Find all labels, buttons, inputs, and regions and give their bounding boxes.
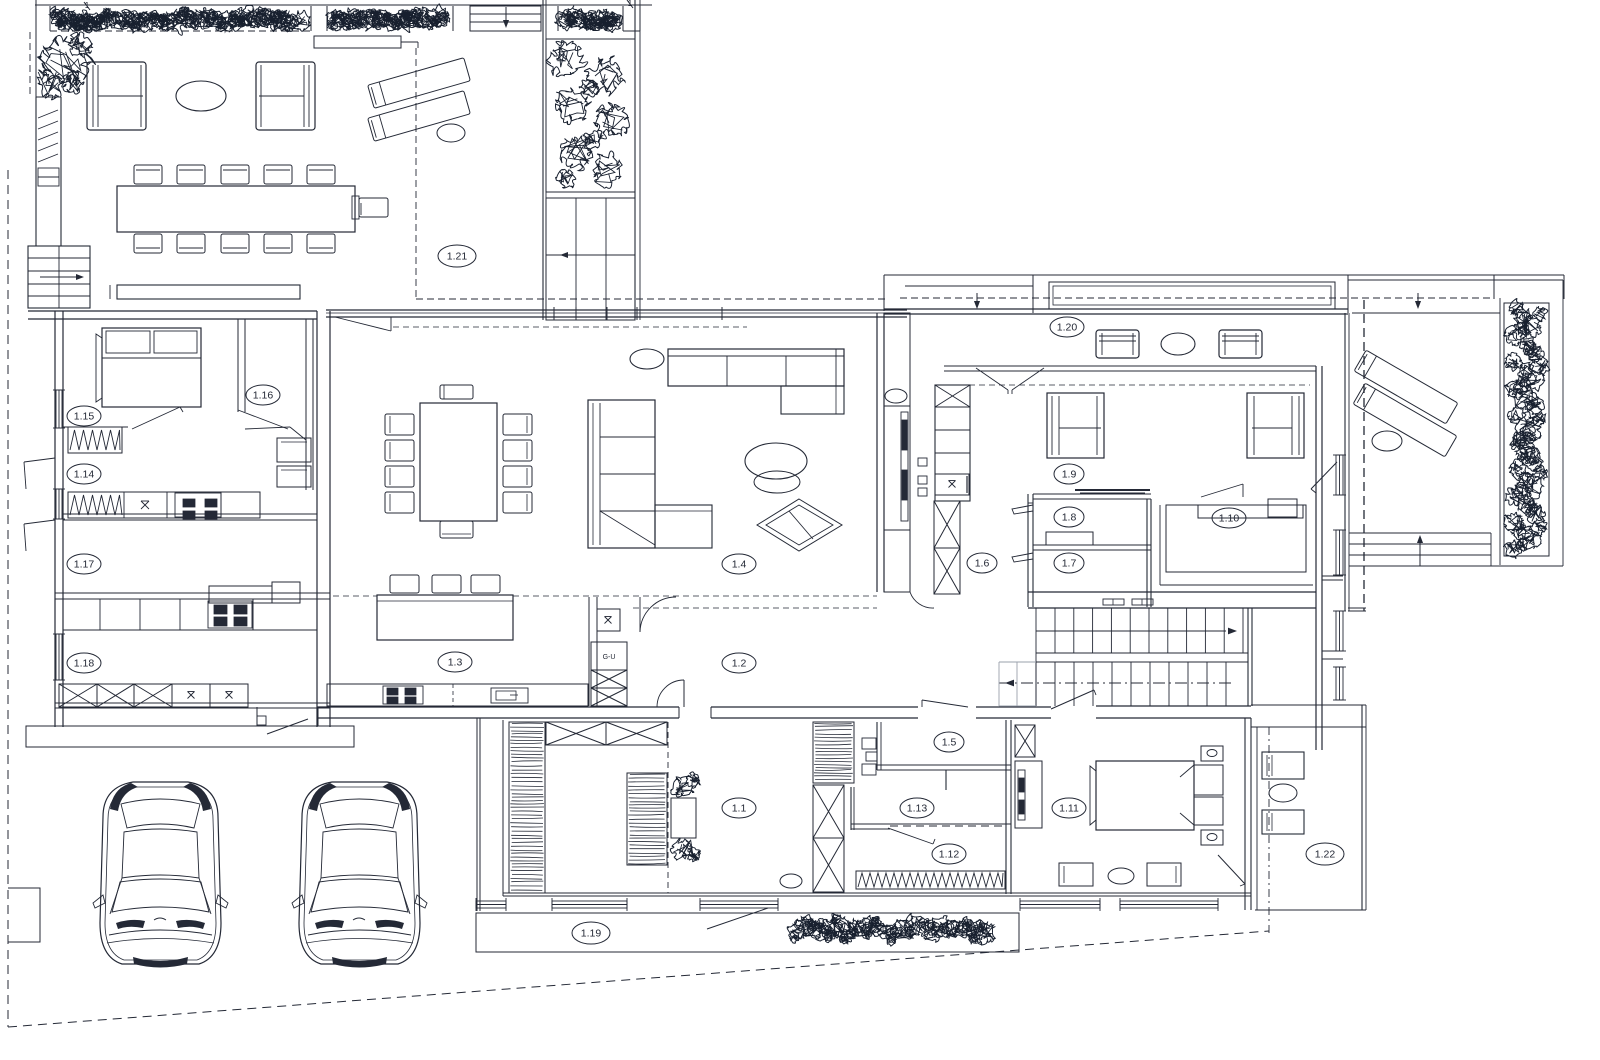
svg-text:1.21: 1.21 [447, 251, 468, 263]
svg-text:1: 1 [85, 1, 90, 10]
svg-text:1.4: 1.4 [732, 559, 747, 571]
svg-text:1.12: 1.12 [939, 849, 960, 861]
svg-text:1.18: 1.18 [74, 658, 95, 670]
svg-text:1.22: 1.22 [1315, 849, 1336, 861]
svg-text:1.5: 1.5 [942, 737, 957, 749]
svg-text:1.3: 1.3 [448, 657, 463, 669]
svg-text:1.9: 1.9 [1062, 469, 1077, 481]
svg-text:1.11: 1.11 [1059, 803, 1079, 815]
svg-text:1: 1 [628, 0, 633, 8]
svg-text:G-U: G-U [603, 654, 616, 661]
svg-text:1.19: 1.19 [581, 928, 602, 940]
svg-text:1.6: 1.6 [975, 558, 990, 570]
svg-text:1.15: 1.15 [74, 411, 95, 423]
svg-text:1.10: 1.10 [1219, 513, 1240, 525]
svg-text:1.1: 1.1 [732, 803, 747, 815]
svg-text:1.8: 1.8 [1062, 512, 1077, 524]
svg-text:1.14: 1.14 [74, 469, 95, 481]
svg-text:1.7: 1.7 [1062, 558, 1077, 570]
svg-text:1.13: 1.13 [907, 803, 928, 815]
svg-text:1.20: 1.20 [1057, 322, 1078, 334]
svg-text:1.16: 1.16 [253, 390, 274, 402]
svg-text:1.17: 1.17 [74, 559, 95, 571]
svg-text:1.2: 1.2 [732, 658, 747, 670]
